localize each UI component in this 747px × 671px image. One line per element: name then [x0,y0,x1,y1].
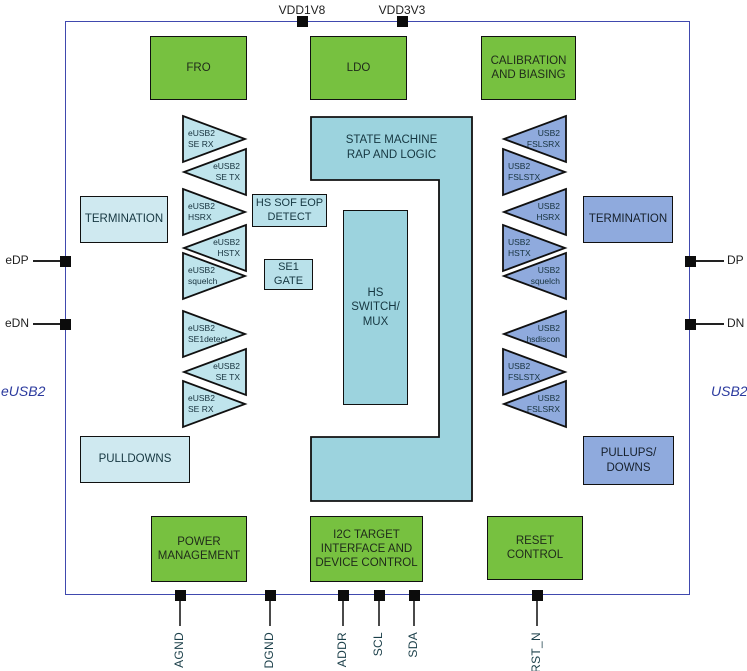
pin-label-rstn: RST_N [529,632,543,671]
pin-stem-edn [33,323,60,325]
pin-stem-sda [413,601,415,626]
power-management-block: POWER MANAGEMENT [151,516,247,582]
pin-square-addr [338,590,349,601]
amp-label: USB2 hsdiscon [502,323,567,345]
amp-label: USB2 HSRX [502,201,567,223]
se1-gate-block: SE1 GATE [264,259,313,290]
pin-stem-scl [378,601,380,626]
i2c-target-interface-block: I2C TARGET INTERFACE AND DEVICE CONTROL [310,516,423,582]
pin-square-agnd [175,590,186,601]
pin-label-dn: DN [727,316,744,330]
termination-left-block: TERMINATION [80,196,168,243]
calibration-biasing-block: CALIBRATION AND BIASING [481,36,576,100]
amp-label: USB2 FSLSRX [502,393,567,415]
pin-label-sda: SDA [406,632,420,658]
pin-square-sda [409,590,420,601]
bus-label-eusb2: eUSB2 [1,383,45,399]
amp-label: eUSB2 HSRX [182,201,247,223]
pin-square-scl [374,590,385,601]
reset-control-block: RESET CONTROL [487,516,583,580]
usb2-squelch-amp: USB2 squelch [502,252,567,300]
pin-stem-edp [33,260,60,262]
block-diagram: VDD1V8 VDD3V3 eDP eDN eUSB2 DP DN USB2 A… [0,0,747,671]
pin-label-addr: ADDR [335,632,349,667]
pin-label-dp: DP [727,253,744,267]
amp-label: USB2 FSLSRX [502,128,567,150]
pin-square-vdd1v8 [297,16,308,27]
pin-square-edn [60,319,71,330]
usb2-fslsrx-bottom-amp: USB2 FSLSRX [502,380,567,428]
pin-label-edn: eDN [2,316,32,330]
pin-stem-rstn [536,601,538,626]
pin-square-dn [685,319,696,330]
bus-label-usb2: USB2 [711,383,747,399]
eusb2-squelch-amp: eUSB2 squelch [182,252,247,300]
pin-label-edp: eDP [2,253,32,267]
ldo-block: LDO [310,36,407,100]
pin-square-vdd3v3 [397,16,408,27]
pin-stem-addr [342,601,344,626]
fro-block: FRO [150,36,247,100]
termination-right-block: TERMINATION [583,196,673,243]
pin-stem-dn [695,323,724,325]
pin-square-rstn [532,590,543,601]
amp-label: USB2 FSLSTX [502,161,567,183]
hs-switch-mux-block: HS SWITCH/ MUX [343,210,408,405]
pin-stem-dp [695,260,724,262]
pin-label-dgnd: DGND [262,632,276,669]
amp-label: eUSB2 SE1detect [182,323,247,345]
pin-stem-agnd [179,601,181,626]
pin-label-agnd: AGND [172,632,186,668]
eusb2-se-rx-bottom-amp: eUSB2 SE RX [182,380,247,428]
amp-label: eUSB2 SE RX [182,393,247,415]
amp-label: eUSB2 squelch [182,265,247,287]
pin-square-dgnd [265,590,276,601]
pin-stem-dgnd [269,601,271,626]
amp-label: eUSB2 SE TX [182,161,247,183]
state-machine-label: STATE MACHINE RAP AND LOGIC [310,116,473,180]
amp-label: eUSB2 SE RX [182,128,247,150]
pulldowns-block: PULLDOWNS [80,436,190,483]
pin-square-dp [685,256,696,267]
pin-square-edp [60,256,71,267]
pullups-downs-block: PULLUPS/ DOWNS [583,436,674,485]
amp-label: USB2 squelch [502,265,567,287]
pin-label-scl: SCL [371,632,385,656]
